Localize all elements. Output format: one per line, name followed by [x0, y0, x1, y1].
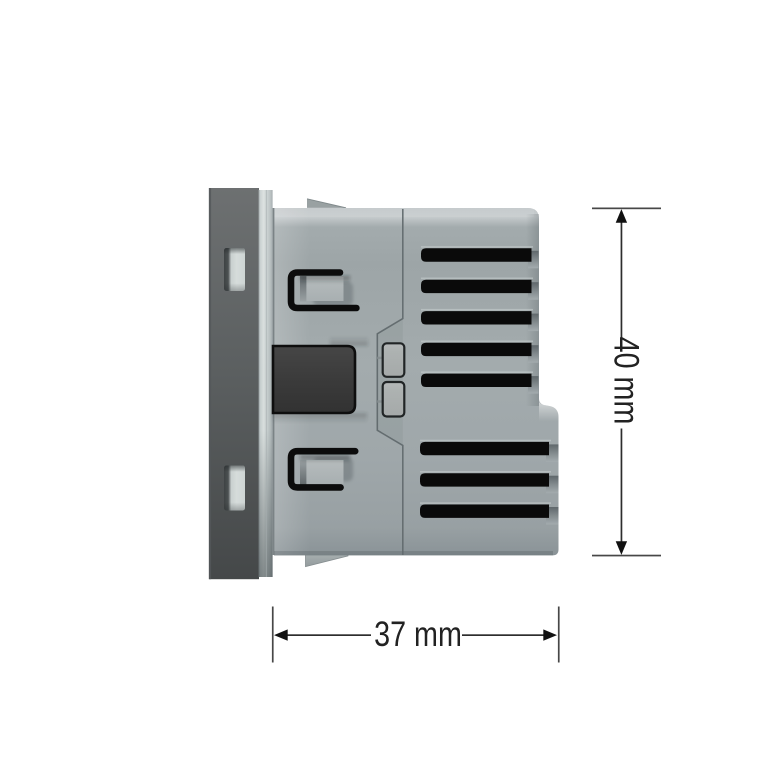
- svg-text:40 mm: 40 mm: [607, 337, 646, 425]
- svg-text:37 mm: 37 mm: [374, 614, 462, 653]
